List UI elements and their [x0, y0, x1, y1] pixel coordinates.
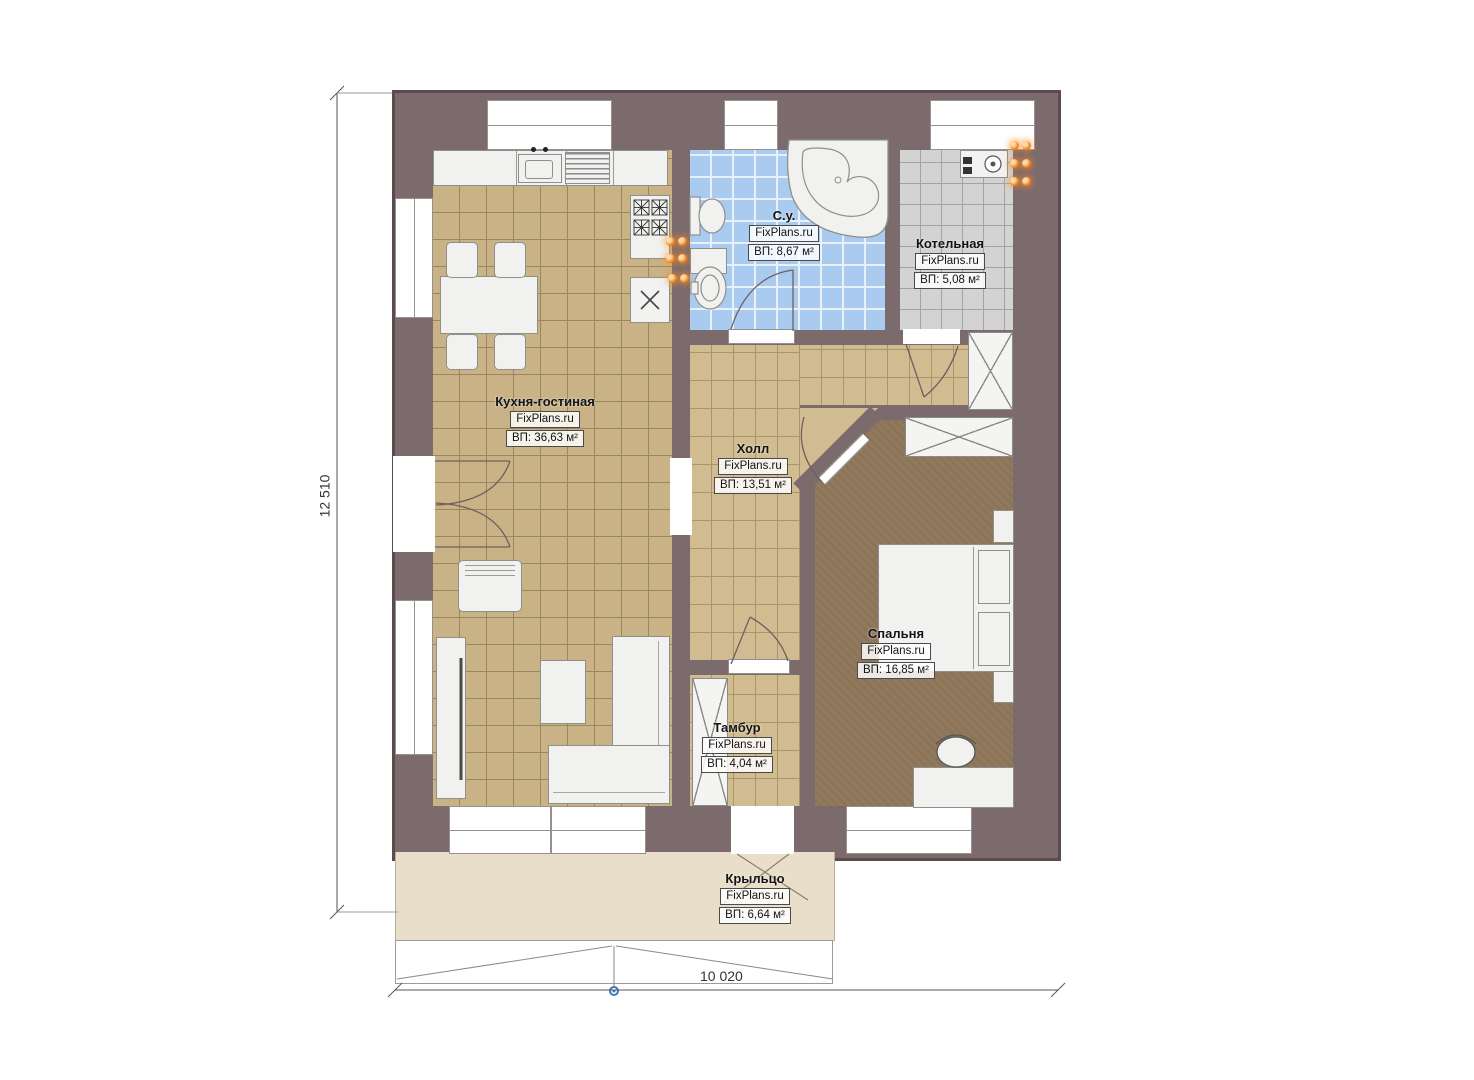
- room-label-bedroom: Спальня FixPlans.ru ВП: 16,85 м²: [846, 626, 946, 679]
- pillow: [978, 612, 1010, 666]
- room-brand: FixPlans.ru: [718, 458, 788, 475]
- room-label-bathroom: С.у. FixPlans.ru ВП: 8,67 м²: [738, 208, 830, 261]
- stove: [630, 195, 670, 259]
- room-label-hall: Холл FixPlans.ru ВП: 13,51 м²: [703, 441, 803, 494]
- window-bottom-bedroom: [846, 806, 972, 854]
- bedroom-desk: [913, 767, 1014, 808]
- corner-sofa-short: [548, 745, 670, 804]
- chair: [494, 334, 526, 370]
- tv-stand: [436, 637, 466, 799]
- window-bottom-1: [449, 806, 551, 854]
- dimension-height: 12 510: [316, 475, 332, 518]
- room-label-boiler: Котельная FixPlans.ru ВП: 5,08 м²: [902, 236, 998, 289]
- counter-divider: [613, 151, 614, 185]
- kitchen-sink: [518, 154, 562, 183]
- hall-floor: [690, 345, 800, 660]
- dimension-width: 10 020: [700, 968, 743, 984]
- counter-divider: [516, 151, 517, 185]
- room-brand: FixPlans.ru: [915, 253, 985, 270]
- dining-table: [440, 276, 538, 334]
- armchair: [458, 560, 522, 612]
- room-title: Холл: [737, 441, 770, 456]
- bed-headboard-line: [973, 547, 974, 669]
- room-title: Котельная: [916, 236, 984, 251]
- room-area: ВП: 36,63 м²: [506, 430, 584, 447]
- room-title: Спальня: [868, 626, 924, 641]
- radiator-icon: [666, 254, 687, 263]
- room-label-kitchen-living: Кухня-гостиная FixPlans.ru ВП: 36,63 м²: [489, 394, 601, 447]
- room-area: ВП: 16,85 м²: [857, 662, 935, 679]
- room-title: Кухня-гостиная: [495, 394, 595, 409]
- boiler-unit: [960, 150, 1008, 178]
- radiator-icon: [666, 237, 687, 246]
- bathroom-door: [728, 329, 795, 344]
- entry-marker-dot: [613, 990, 616, 993]
- window-bottom-2: [551, 806, 646, 854]
- faucet-dot: [531, 147, 536, 152]
- room-title: С.у.: [773, 208, 796, 223]
- armchair-back: [465, 565, 515, 579]
- coffee-table: [540, 660, 586, 724]
- pillow: [978, 550, 1010, 604]
- chair: [446, 242, 478, 278]
- room-title: Крыльцо: [725, 871, 784, 886]
- entry-marker: [610, 987, 618, 995]
- room-brand: FixPlans.ru: [510, 411, 580, 428]
- bedroom-wardrobe: [905, 417, 1013, 457]
- nightstand: [993, 510, 1014, 543]
- window-kitchen-top: [487, 100, 612, 150]
- chair: [446, 334, 478, 370]
- sofa-seam: [553, 792, 665, 793]
- nightstand: [993, 671, 1014, 703]
- radiator-icon: [1010, 177, 1031, 186]
- radiator-icon: [1010, 159, 1031, 168]
- hall-wardrobe: [968, 332, 1013, 410]
- sink-basin: [525, 160, 553, 179]
- room-area: ВП: 8,67 м²: [748, 244, 820, 261]
- faucet-dot: [543, 147, 548, 152]
- room-area: ВП: 5,08 м²: [914, 272, 986, 289]
- room-area: ВП: 4,04 м²: [701, 756, 773, 773]
- room-brand: FixPlans.ru: [861, 643, 931, 660]
- window-bathroom-top: [724, 100, 778, 150]
- radiator-icon: [1010, 141, 1031, 150]
- dish-drainer: [565, 152, 610, 184]
- window-left-2: [395, 600, 433, 755]
- porch-steps: [395, 940, 833, 984]
- kitchen-hall-passage: [670, 458, 692, 535]
- room-label-porch: Крыльцо FixPlans.ru ВП: 6,64 м²: [707, 871, 803, 924]
- chair: [494, 242, 526, 278]
- french-door-opening: [393, 456, 435, 552]
- front-door-opening: [731, 806, 794, 854]
- room-label-vestibule: Тамбур FixPlans.ru ВП: 4,04 м²: [691, 720, 783, 773]
- floor-plan-canvas: Кухня-гостиная FixPlans.ru ВП: 36,63 м² …: [0, 0, 1474, 1080]
- bath-cabinet: [690, 248, 727, 274]
- towel-radiator-icon: [668, 274, 689, 283]
- boiler-door-opening: [903, 329, 960, 344]
- window-left-1: [395, 198, 433, 318]
- room-title: Тамбур: [713, 720, 760, 735]
- prep-sink: [630, 277, 670, 323]
- vestibule-door: [728, 659, 790, 674]
- room-area: ВП: 6,64 м²: [719, 907, 791, 924]
- room-brand: FixPlans.ru: [720, 888, 790, 905]
- room-brand: FixPlans.ru: [702, 737, 772, 754]
- room-area: ВП: 13,51 м²: [714, 477, 792, 494]
- room-brand: FixPlans.ru: [749, 225, 819, 242]
